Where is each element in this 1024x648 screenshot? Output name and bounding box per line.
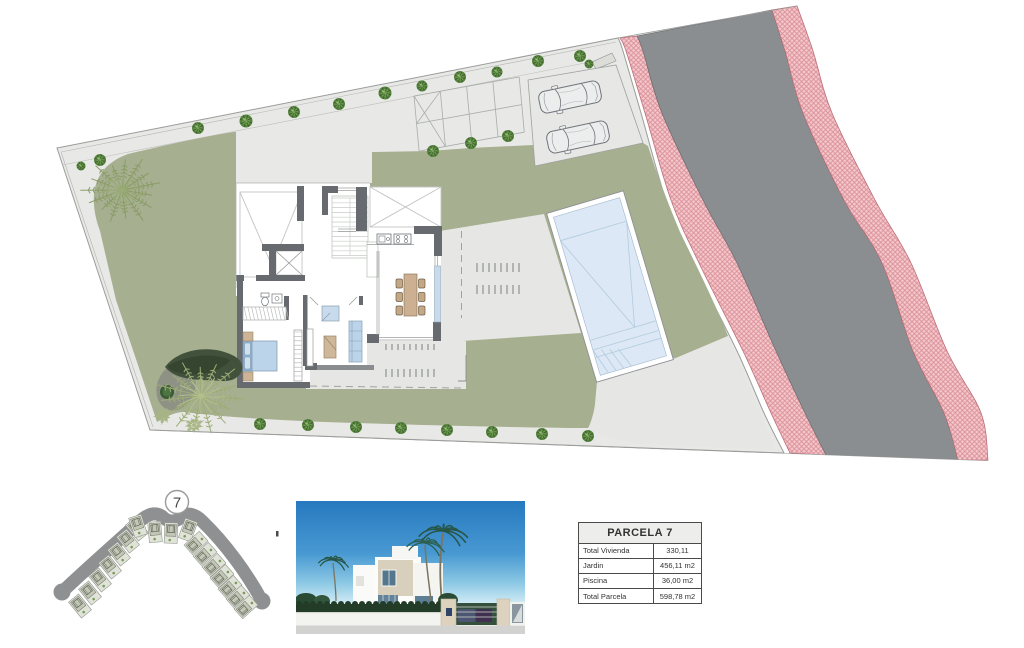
svg-text:7: 7 [173,495,181,512]
